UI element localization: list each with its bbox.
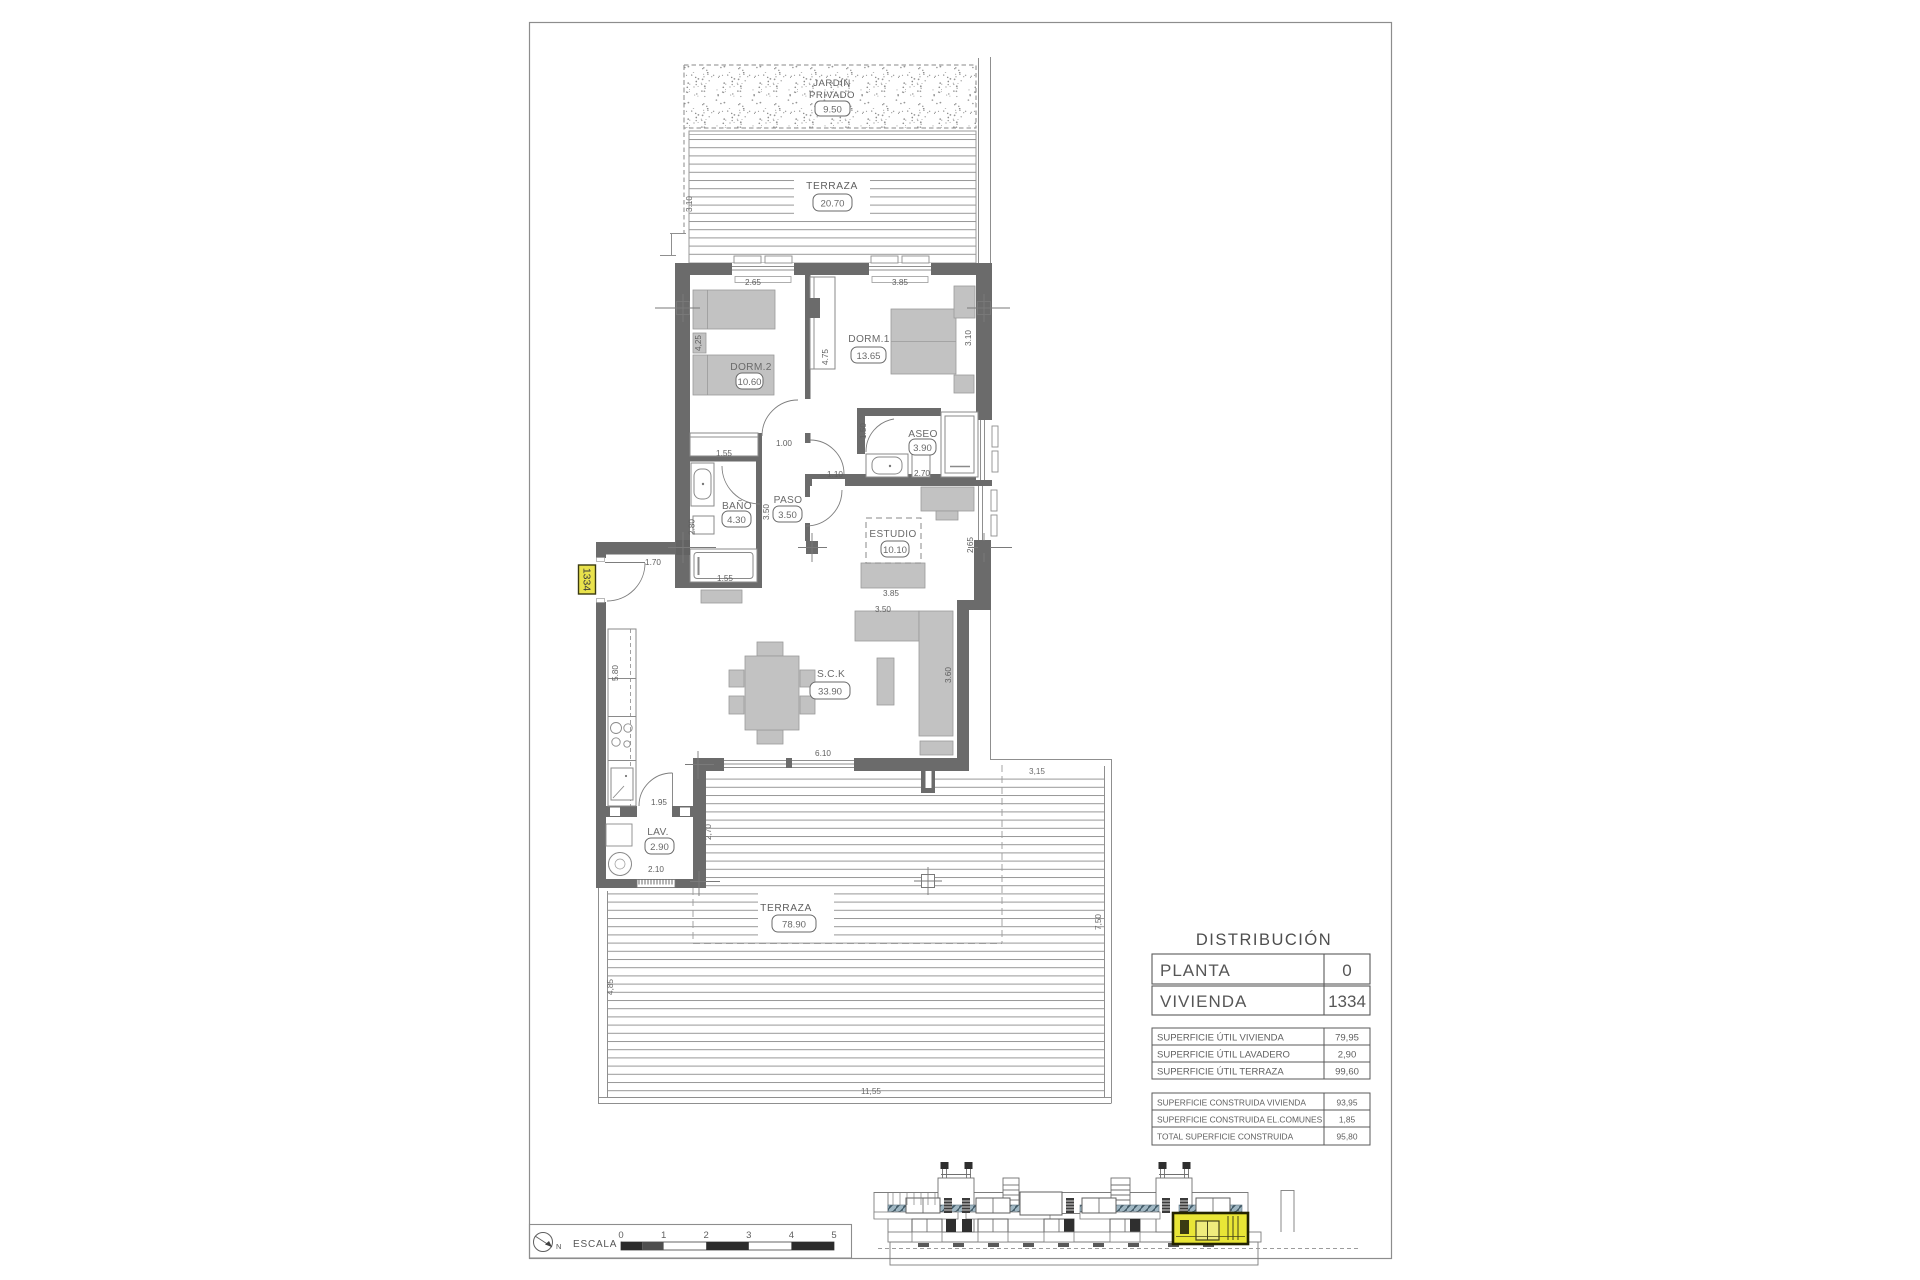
svg-text:TERRAZA: TERRAZA [806, 181, 858, 192]
svg-text:95,80: 95,80 [1337, 1132, 1358, 1142]
svg-text:3: 3 [746, 1230, 751, 1241]
svg-text:2.10: 2.10 [648, 865, 664, 874]
svg-text:TERRAZA: TERRAZA [760, 903, 812, 914]
svg-text:TOTAL SUPERFICIE CONSTRUIDA: TOTAL SUPERFICIE CONSTRUIDA [1157, 1132, 1294, 1142]
svg-text:SUPERFICIE CONSTRUIDA VIVIENDA: SUPERFICIE CONSTRUIDA VIVIENDA [1157, 1098, 1306, 1108]
svg-text:2.80: 2.80 [688, 519, 697, 535]
svg-text:PASO: PASO [774, 495, 803, 506]
svg-text:20.70: 20.70 [820, 199, 844, 210]
svg-text:3,15: 3,15 [1029, 767, 1045, 776]
svg-text:PRIVADO: PRIVADO [809, 90, 855, 101]
svg-text:2: 2 [704, 1230, 709, 1241]
svg-text:2.65: 2.65 [745, 278, 761, 287]
svg-text:4,85: 4,85 [606, 979, 615, 995]
svg-text:1334: 1334 [581, 568, 593, 592]
svg-text:ASEO: ASEO [908, 429, 938, 440]
svg-text:VIVIENDA: VIVIENDA [1160, 992, 1247, 1011]
svg-text:3.50: 3.50 [778, 510, 797, 521]
svg-text:33.90: 33.90 [818, 687, 842, 698]
svg-text:2.90: 2.90 [650, 842, 669, 853]
svg-text:5.80: 5.80 [611, 665, 620, 681]
svg-text:2,90: 2,90 [1338, 1050, 1357, 1061]
svg-text:3.85: 3.85 [883, 589, 899, 598]
svg-text:93,95: 93,95 [1337, 1098, 1358, 1108]
svg-text:4.75: 4.75 [821, 349, 830, 365]
svg-text:SUPERFICIE CONSTRUIDA EL.COMUN: SUPERFICIE CONSTRUIDA EL.COMUNES [1157, 1115, 1323, 1125]
svg-text:4: 4 [789, 1230, 794, 1241]
svg-text:6.10: 6.10 [815, 749, 831, 758]
svg-text:5: 5 [831, 1230, 836, 1241]
svg-text:1.55: 1.55 [717, 574, 733, 583]
svg-text:1334: 1334 [1328, 992, 1366, 1011]
svg-text:1.70: 1.70 [645, 558, 661, 567]
svg-text:79,95: 79,95 [1335, 1033, 1359, 1044]
svg-text:1.00: 1.00 [776, 439, 792, 448]
svg-text:10.10: 10.10 [883, 545, 907, 556]
svg-text:1,85: 1,85 [1339, 1115, 1356, 1125]
svg-text:2.65: 2.65 [966, 537, 975, 553]
svg-text:LAV.: LAV. [647, 827, 669, 838]
svg-text:10.60: 10.60 [737, 377, 761, 388]
svg-text:1.10: 1.10 [827, 470, 843, 479]
svg-text:7,50: 7,50 [1094, 914, 1103, 930]
svg-text:S.C.K: S.C.K [817, 669, 845, 680]
svg-text:JARDIN: JARDIN [813, 78, 851, 89]
svg-text:1.50: 1.50 [859, 423, 868, 439]
svg-text:SUPERFICIE ÚTIL VIVIENDA: SUPERFICIE ÚTIL VIVIENDA [1157, 1033, 1285, 1044]
svg-text:ESCALA :: ESCALA : [573, 1239, 624, 1250]
svg-text:3.50: 3.50 [762, 504, 771, 520]
svg-text:3.85: 3.85 [892, 278, 908, 287]
svg-text:SUPERFICIE ÚTIL LAVADERO: SUPERFICIE ÚTIL LAVADERO [1157, 1050, 1290, 1061]
svg-text:ESTUDIO: ESTUDIO [869, 529, 916, 540]
svg-text:13.65: 13.65 [856, 351, 880, 362]
svg-text:4,25: 4,25 [694, 335, 703, 351]
svg-text:0: 0 [1342, 961, 1351, 980]
svg-text:3.90: 3.90 [913, 443, 932, 454]
svg-text:BAÑO: BAÑO [722, 499, 752, 512]
svg-text:1.95: 1.95 [651, 798, 667, 807]
svg-text:3.10: 3.10 [964, 330, 973, 346]
svg-text:DISTRIBUCIÓN: DISTRIBUCIÓN [1196, 930, 1332, 949]
svg-text:N: N [556, 1242, 561, 1251]
svg-text:SUPERFICIE ÚTIL TERRAZA: SUPERFICIE ÚTIL TERRAZA [1157, 1067, 1284, 1078]
svg-text:DORM.2: DORM.2 [730, 362, 771, 373]
svg-text:3.60: 3.60 [944, 667, 953, 683]
svg-text:4.30: 4.30 [727, 515, 746, 526]
svg-text:2.70: 2.70 [914, 469, 930, 478]
svg-text:DORM.1: DORM.1 [848, 334, 889, 345]
svg-text:11,55: 11,55 [861, 1087, 881, 1096]
svg-text:99,60: 99,60 [1335, 1067, 1359, 1078]
svg-text:PLANTA: PLANTA [1160, 961, 1231, 980]
svg-text:3.10: 3.10 [685, 196, 694, 212]
svg-text:1: 1 [661, 1230, 666, 1241]
svg-text:3.50: 3.50 [875, 605, 891, 614]
svg-text:1.55: 1.55 [716, 449, 732, 458]
svg-text:78.90: 78.90 [782, 920, 806, 931]
svg-text:9.50: 9.50 [823, 105, 842, 116]
svg-text:0: 0 [618, 1230, 623, 1241]
